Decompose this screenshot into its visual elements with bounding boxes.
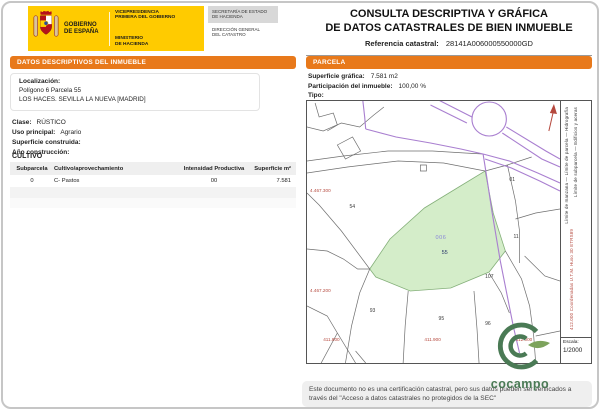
anio-construccion-row: Año construcción: — [12, 148, 292, 158]
utm-coord-left-top: 4.467.300 — [310, 188, 331, 193]
document-title-block: CONSULTA DESCRIPTIVA Y GRÁFICA DE DATOS … — [306, 8, 592, 56]
localizacion-line2: LOS HACES. SEVILLA LA NUEVA [MADRID] — [19, 96, 251, 105]
highlight-parcel-number: 55 — [442, 250, 448, 256]
section-header-parcela: PARCELA — [306, 56, 592, 69]
uso-principal-value: Agrario — [60, 129, 81, 136]
cocampo-logo: cocampo — [486, 321, 554, 391]
parcel-label-95: 95 — [439, 316, 445, 322]
parcel-label-01: 01 — [509, 177, 515, 183]
utm-coord-bottom-2: 411.900 — [424, 337, 441, 342]
utm-coord-bottom-1: 411.800 — [323, 337, 340, 342]
scale-value: 1/2000 — [563, 347, 589, 354]
col-header-intensidad: Intensidad Productiva — [178, 166, 250, 172]
uso-principal-row: Uso principal:Agrario — [12, 128, 292, 138]
cultivo-section-title: CULTIVO — [12, 153, 42, 160]
col-header-superficie: Superficie m² — [250, 166, 296, 172]
cell-superficie: 7.581 — [250, 178, 296, 184]
parcel-label-107: 107 — [485, 274, 494, 280]
document-title-line1: CONSULTA DESCRIPTIVA Y GRÁFICA — [306, 8, 592, 22]
parcel-label-11: 11 — [513, 234, 518, 240]
participacion-value: 100,00 % — [399, 83, 426, 90]
scale-box: Escala: 1/2000 — [561, 337, 591, 363]
cocampo-wordmark: cocampo — [486, 377, 554, 391]
north-arrow-icon — [549, 104, 557, 131]
government-header: GOBIERNO DE ESPAÑA VICEPRESIDENCIA PRIME… — [28, 6, 278, 51]
vicepresidencia-label: VICEPRESIDENCIA PRIMERA DEL GOBIERNO — [115, 10, 175, 21]
map-legend-strip: Límite de manzana — Límite de parcela — … — [561, 101, 591, 363]
clase-row: Clase:RÚSTICO — [12, 118, 292, 128]
col-header-cultivo: Cultivo/aprovechamiento — [54, 166, 178, 172]
superficie-grafica-row: Superficie gráfica:7.581 m2 — [308, 72, 592, 82]
cadastral-reference-label: Referencia catastral: — [365, 39, 439, 48]
highlight-subparcel-code: 006 — [436, 235, 447, 241]
department-block: SECRETARÍA DE ESTADO DE HACIENDA DIRECCI… — [208, 6, 278, 51]
cell-cultivo: C- Pastos — [54, 178, 178, 184]
superficie-construida-row: Superficie construida: — [12, 138, 292, 148]
empty-table-row — [10, 187, 296, 198]
empty-table-row — [10, 198, 296, 208]
ministerio-label: MINISTERIO DE HACIENDA — [115, 36, 175, 47]
localizacion-line1: Polígono 6 Parcela 55 — [19, 87, 251, 96]
highlighted-parcel-55 — [370, 171, 506, 291]
superficie-construida-label: Superficie construida: — [12, 139, 81, 146]
participacion-row: Participación del inmueble:100,00 % — [308, 82, 592, 92]
parcel-label-54: 54 — [350, 204, 356, 210]
direccion-catastro-label: DIRECCIÓN GENERAL DEL CATASTRO — [208, 23, 278, 42]
clase-label: Clase: — [12, 119, 32, 126]
cultivo-table-row: 0 C- Pastos 00 7.581 — [10, 175, 296, 187]
cadastral-document: GOBIERNO DE ESPAÑA VICEPRESIDENCIA PRIME… — [0, 0, 600, 410]
superficie-grafica-value: 7.581 m2 — [371, 73, 398, 80]
inmueble-attributes: Clase:RÚSTICO Uso principal:Agrario Supe… — [12, 118, 292, 158]
gobierno-logo-block: GOBIERNO DE ESPAÑA VICEPRESIDENCIA PRIME… — [28, 6, 204, 51]
cadastral-reference: Referencia catastral:28141A006000550000G… — [306, 39, 592, 48]
uso-principal-label: Uso principal: — [12, 129, 55, 136]
gobierno-espana-label: GOBIERNO DE ESPAÑA — [64, 22, 104, 36]
cultivo-table: Subparcela Cultivo/aprovechamiento Inten… — [10, 162, 296, 208]
tipo-label: Tipo: — [308, 92, 324, 99]
header-divider — [109, 12, 110, 46]
col-header-subparcela: Subparcela — [10, 166, 54, 172]
cell-subparcela: 0 — [10, 178, 54, 184]
clase-value: RÚSTICO — [37, 119, 66, 126]
cocampo-emblem-icon — [486, 321, 554, 371]
cadastral-reference-value: 28141A006000550000GD — [446, 39, 533, 48]
cultivo-table-header-row: Subparcela Cultivo/aprovechamiento Inten… — [10, 162, 296, 175]
spain-coat-of-arms-icon — [32, 8, 60, 49]
cell-intensidad: 00 — [178, 178, 250, 184]
document-title-line2: DE DATOS CATASTRALES DE BIEN INMUEBLE — [306, 22, 592, 36]
localizacion-label: Localización: — [19, 78, 251, 85]
localizacion-box: Localización: Polígono 6 Parcela 55 LOS … — [10, 73, 260, 111]
scale-label: Escala: — [563, 340, 589, 345]
participacion-label: Participación del inmueble: — [308, 83, 393, 90]
parcela-info: Superficie gráfica:7.581 m2 Participació… — [308, 72, 592, 101]
secretaria-label: SECRETARÍA DE ESTADO DE HACIENDA — [208, 6, 278, 23]
section-header-datos-descriptivos: DATOS DESCRIPTIVOS DEL INMUEBLE — [10, 56, 296, 69]
utm-coord-left-bottom: 4.467.200 — [310, 288, 331, 293]
legend-utm-note: 412.000 Coordenadas U.T.M. Huso 30 ETRS8… — [569, 229, 574, 330]
superficie-grafica-label: Superficie gráfica: — [308, 73, 365, 80]
parcel-label-93: 93 — [370, 308, 376, 314]
legend-column-1: Límite de manzana — Límite de parcela — … — [564, 107, 569, 224]
legend-column-2: Límite de subparcela — Edificios y acera… — [573, 107, 578, 197]
